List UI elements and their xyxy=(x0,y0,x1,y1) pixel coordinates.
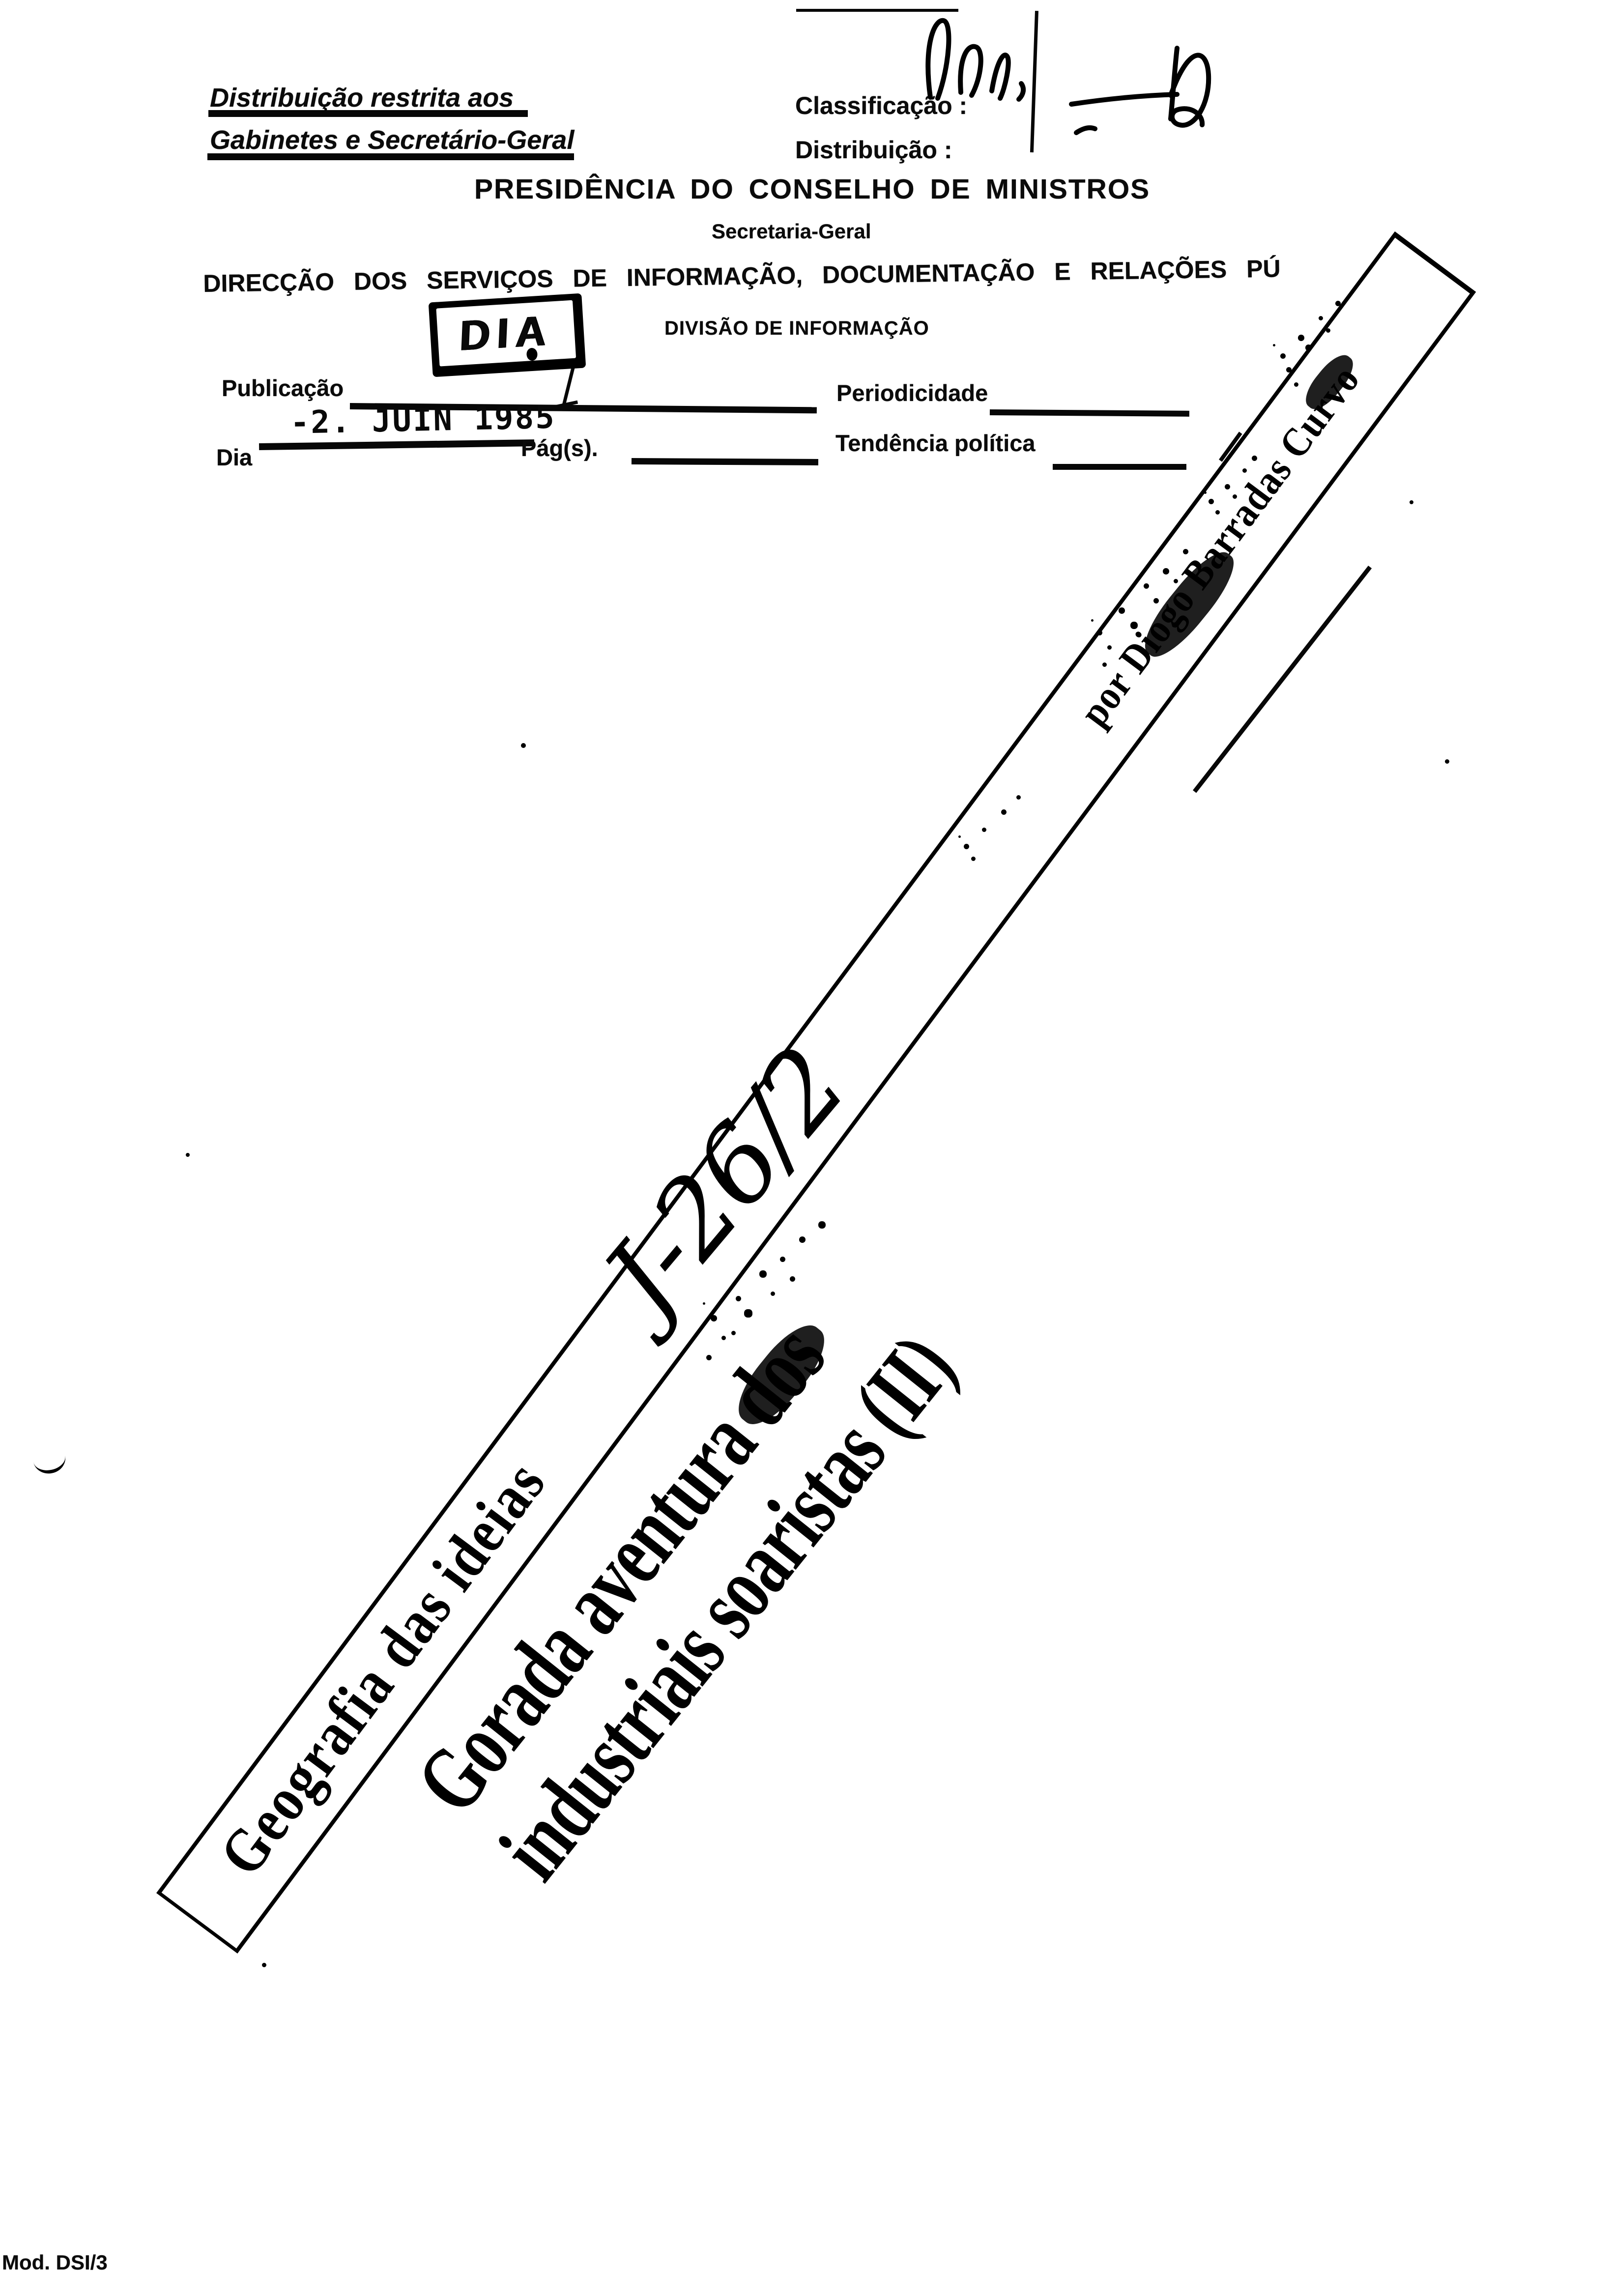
stray-dot-3 xyxy=(186,1153,190,1157)
speckle-cluster-4 xyxy=(1204,491,1207,494)
speckle-cluster-3 xyxy=(1273,344,1275,346)
restricted-note-line2: Gabinetes e Secretário-Geral xyxy=(210,125,574,155)
form-model-number: Mod. DSI/3 xyxy=(2,2251,108,2274)
stray-dot-2 xyxy=(1445,759,1449,764)
day-label: Dia xyxy=(216,444,252,471)
speckle-cluster-2 xyxy=(1091,619,1094,622)
handwriting-signature-stroke xyxy=(1071,94,1177,104)
stray-dot-1 xyxy=(521,743,526,748)
periodicity-label: Periodicidade xyxy=(836,379,988,406)
restricted-underline-2 xyxy=(207,153,574,160)
periodicity-fill-line xyxy=(990,409,1189,417)
page-subtitle: Secretaria-Geral xyxy=(712,220,871,243)
pages-label: Pág(s). xyxy=(521,434,598,461)
page-title: PRESIDÊNCIA DO CONSELHO DE MINISTROS xyxy=(474,173,1150,205)
handwriting-classification-mark xyxy=(909,10,1229,152)
dia-stamp-text: DIA xyxy=(459,306,554,361)
handwriting-loop-1 xyxy=(928,21,949,98)
dia-stamp: DIA xyxy=(429,293,586,377)
tendency-fill-line xyxy=(1053,464,1186,470)
speckle-cluster-1 xyxy=(703,1302,705,1305)
stray-dot-4 xyxy=(262,1963,266,1967)
scanned-document-page: Distribuição restrita aos Gabinetes e Se… xyxy=(0,0,1612,2296)
publication-label: Publicação xyxy=(222,374,344,402)
stray-dot-5 xyxy=(1410,500,1413,504)
restricted-underline-1 xyxy=(208,110,528,117)
handwriting-signature-dash xyxy=(1076,128,1095,133)
speckle-cluster-5 xyxy=(958,835,961,838)
division-line: DIVISÃO DE INFORMAÇÃO xyxy=(664,317,929,340)
margin-tilde-mark xyxy=(33,1454,68,1476)
tendency-label: Tendência política xyxy=(835,430,1036,457)
handwriting-loop-2 xyxy=(960,47,981,95)
restricted-note-line1: Distribuição restrita aos xyxy=(210,83,514,113)
directorate-line: DIRECÇÃO DOS SERVIÇOS DE INFORMAÇÃO, DOC… xyxy=(203,254,1281,298)
handwriting-loop-3 xyxy=(992,55,1008,98)
handwriting-comma xyxy=(1019,84,1023,99)
date-received-stamp: -2. JUIN 1985 xyxy=(290,400,556,441)
dia-stamp-inner: DIA xyxy=(436,300,576,367)
pages-fill-line xyxy=(632,458,818,465)
